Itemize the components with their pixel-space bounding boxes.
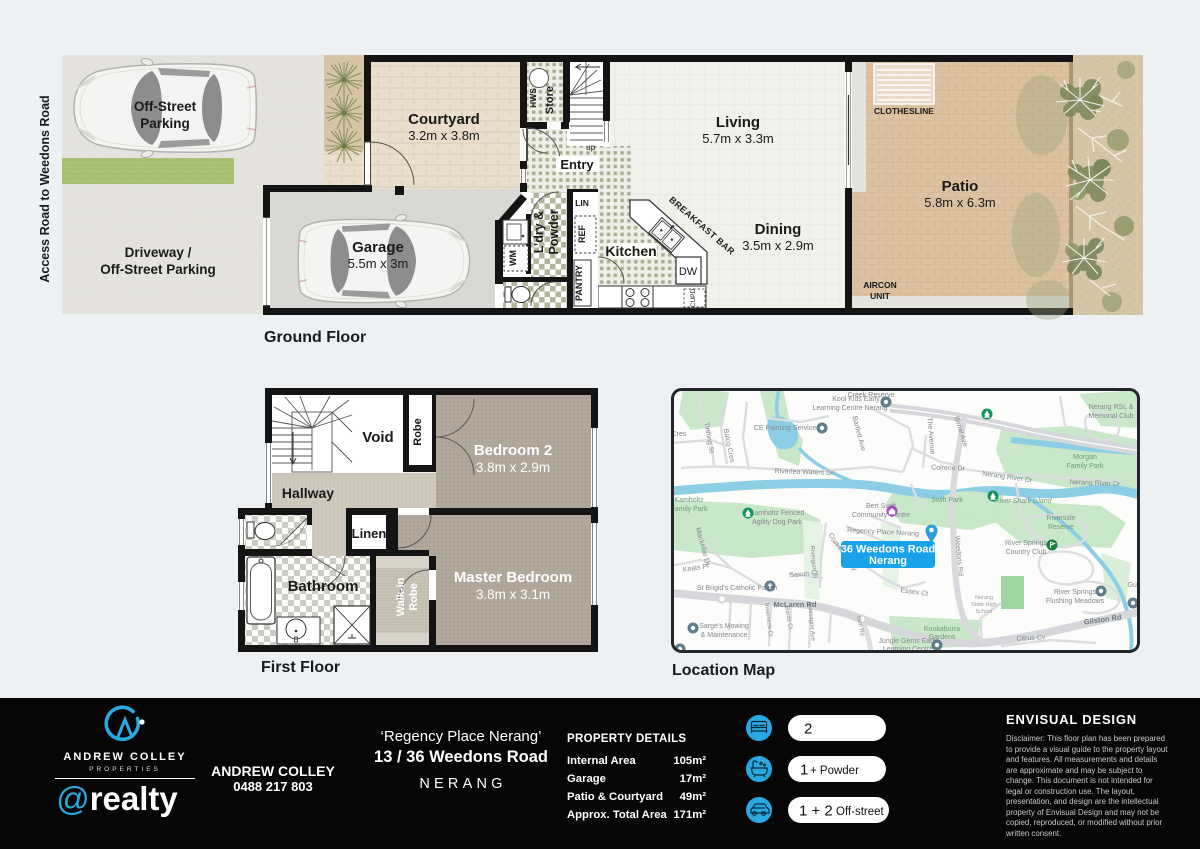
svg-text:Jungle Gems Early: Jungle Gems Early — [878, 638, 938, 645]
svg-text:Linen: Linen — [352, 526, 387, 541]
svg-text:3.8m x 3.1m: 3.8m x 3.1m — [476, 587, 550, 602]
svg-text:5.5m x 3m: 5.5m x 3m — [348, 256, 409, 271]
svg-text:DW: DW — [679, 266, 698, 278]
svg-text:CE Painting Service: CE Painting Service — [754, 425, 816, 432]
svg-text:Community Centre: Community Centre — [852, 512, 910, 519]
svg-text:3.2m x 3.8m: 3.2m x 3.8m — [408, 128, 480, 143]
svg-text:Patio: Patio — [942, 178, 979, 195]
svg-text:3.8m x 2.9m: 3.8m x 2.9m — [476, 460, 550, 475]
svg-text:Driveway /: Driveway / — [125, 245, 192, 260]
svg-text:Agility Dog Park: Agility Dog Park — [752, 519, 802, 526]
svg-text:Memorial Club: Memorial Club — [1088, 413, 1133, 420]
svg-text:HWS: HWS — [528, 88, 538, 108]
svg-text:Nerang: Nerang — [975, 595, 993, 601]
svg-text:Family Park: Family Park — [1067, 463, 1104, 470]
svg-text:Bedroom 2: Bedroom 2 — [474, 442, 552, 459]
svg-text:2: 2 — [804, 721, 812, 738]
svg-text:Hallway: Hallway — [282, 485, 334, 501]
svg-text:Nerang RSL &: Nerang RSL & — [1089, 404, 1134, 411]
svg-text:Flushing Meadows: Flushing Meadows — [1046, 598, 1105, 605]
svg-text:1 + 2: 1 + 2 — [799, 803, 833, 820]
svg-text:Country Club: Country Club — [1006, 549, 1047, 556]
svg-text:Kamholtz Fenced: Kamholtz Fenced — [750, 510, 805, 517]
svg-text:Off-street: Off-street — [836, 806, 885, 818]
svg-text:Dining: Dining — [755, 221, 802, 238]
svg-text:1: 1 — [800, 762, 808, 779]
svg-text:Sarge's Mowing: Sarge's Mowing — [699, 623, 749, 630]
svg-text:REF: REF — [577, 224, 587, 243]
svg-text:CLOTHESLINE: CLOTHESLINE — [874, 106, 934, 116]
svg-text:School: School — [976, 609, 993, 615]
svg-text:Entry: Entry — [560, 157, 594, 172]
svg-text:Ground Floor: Ground Floor — [264, 329, 366, 346]
svg-text:Powder: Powder — [547, 209, 561, 254]
svg-text:Access Road to Weedons Road: Access Road to Weedons Road — [38, 95, 52, 282]
svg-text:Bathroom: Bathroom — [288, 578, 359, 595]
svg-text:Kamholtz: Kamholtz — [674, 497, 704, 504]
svg-text:Family Park: Family Park — [671, 506, 708, 513]
svg-text:Robe: Robe — [412, 418, 424, 446]
svg-text:Master Bedroom: Master Bedroom — [454, 569, 572, 586]
svg-text:First Floor: First Floor — [261, 659, 340, 676]
svg-text:36 Weedons Road: 36 Weedons Road — [841, 544, 936, 556]
svg-text:& Maintenance: & Maintenance — [701, 632, 748, 639]
svg-text:5.7m x 3.3m: 5.7m x 3.3m — [702, 131, 774, 146]
svg-text:Robe: Robe — [408, 583, 420, 611]
svg-text:Kookaburra: Kookaburra — [924, 626, 960, 633]
svg-text:WM: WM — [508, 250, 518, 266]
svg-text:Kitchen: Kitchen — [605, 243, 656, 259]
svg-text:River Springs: River Springs — [1054, 589, 1097, 596]
svg-text:Nerang: Nerang — [869, 555, 907, 567]
svg-text:L’dry &: L’dry & — [532, 211, 546, 253]
svg-text:Learning Centre Nerang: Learning Centre Nerang — [812, 405, 887, 412]
svg-text:Off-Street: Off-Street — [134, 99, 197, 114]
svg-text:River Shark Island: River Shark Island — [994, 498, 1052, 505]
svg-text:Reserve: Reserve — [1048, 524, 1074, 531]
svg-text:AIRCON: AIRCON — [863, 280, 897, 290]
svg-text:Colrene Dr: Colrene Dr — [931, 464, 966, 472]
svg-text:River Springs: River Springs — [1005, 540, 1048, 547]
svg-text:UNIT: UNIT — [870, 291, 891, 301]
svg-text:Walk-in: Walk-in — [395, 577, 407, 616]
svg-text:LIN: LIN — [575, 198, 589, 208]
svg-text:Off-Street Parking: Off-Street Parking — [100, 262, 216, 277]
svg-text:Courtyard: Courtyard — [408, 111, 480, 128]
svg-text:PANTRY: PANTRY — [574, 265, 584, 301]
svg-text:up: up — [586, 142, 596, 152]
svg-text:5.8m x 6.3m: 5.8m x 6.3m — [924, 195, 996, 210]
svg-text:+ Powder: + Powder — [810, 765, 859, 777]
svg-text:Swift Park: Swift Park — [931, 497, 963, 504]
svg-text:Parking: Parking — [140, 116, 190, 131]
svg-text:CUPD: CUPD — [690, 288, 697, 307]
svg-text:3.5m x 2.9m: 3.5m x 2.9m — [742, 238, 814, 253]
svg-text:Living: Living — [716, 114, 760, 131]
svg-text:Riverside: Riverside — [1046, 515, 1075, 522]
svg-text:Store: Store — [544, 86, 556, 114]
svg-text:Morgan: Morgan — [1073, 454, 1097, 461]
svg-text:Void: Void — [362, 429, 393, 446]
svg-text:Garage: Garage — [352, 239, 404, 256]
svg-text:State High: State High — [971, 602, 997, 608]
